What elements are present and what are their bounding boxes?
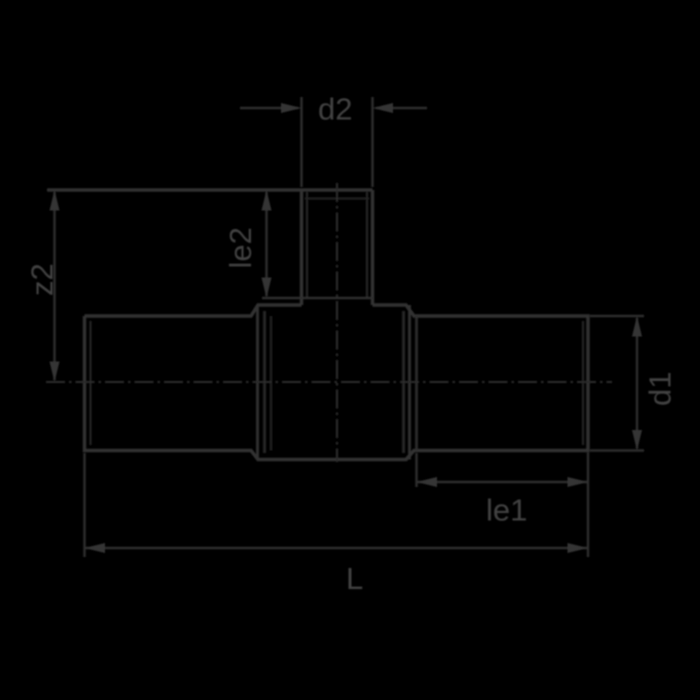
svg-text:le1: le1 [486, 493, 527, 528]
svg-text:le2: le2 [223, 227, 258, 268]
svg-text:d2: d2 [318, 92, 352, 127]
svg-text:d1: d1 [643, 372, 678, 406]
svg-text:z2: z2 [25, 263, 60, 296]
svg-text:L: L [346, 561, 363, 596]
